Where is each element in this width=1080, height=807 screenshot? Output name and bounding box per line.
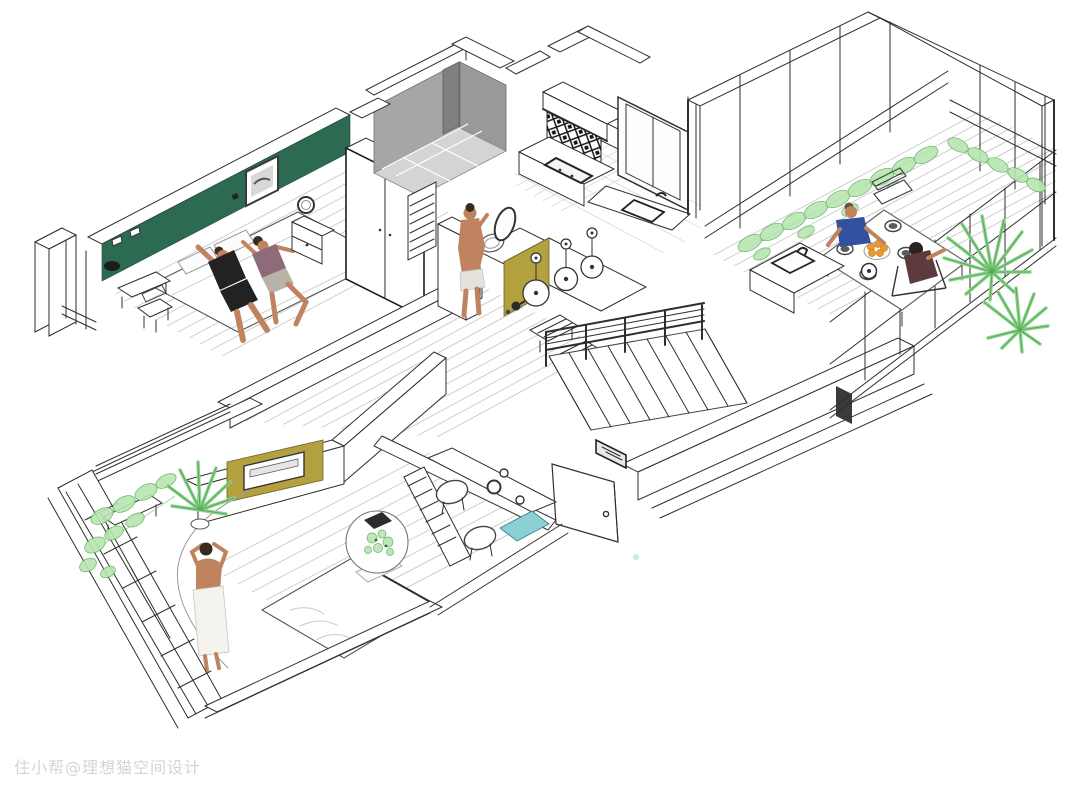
floorplan-rendering: 住小帮@理想猫空间设计	[0, 0, 1080, 807]
large-palm	[984, 288, 1048, 352]
staircase	[546, 303, 747, 430]
roof-band	[688, 12, 880, 106]
isometric-apartment-drawing	[0, 0, 1080, 807]
entry	[552, 440, 626, 542]
person-woman-towel	[192, 543, 229, 671]
stray-green-dot	[633, 554, 639, 560]
watermark: 住小帮@理想猫空间设计	[14, 754, 201, 778]
round-plant-table	[346, 511, 408, 573]
window-sill-plant	[104, 261, 120, 271]
round-mirror	[298, 197, 314, 213]
shower-glass-panel	[443, 62, 459, 134]
walk-in-shower	[366, 37, 514, 196]
desk-bowl	[488, 481, 501, 494]
louver-closet	[408, 182, 436, 260]
glazing-mullions	[705, 22, 1056, 238]
entry-door-open	[552, 464, 618, 542]
